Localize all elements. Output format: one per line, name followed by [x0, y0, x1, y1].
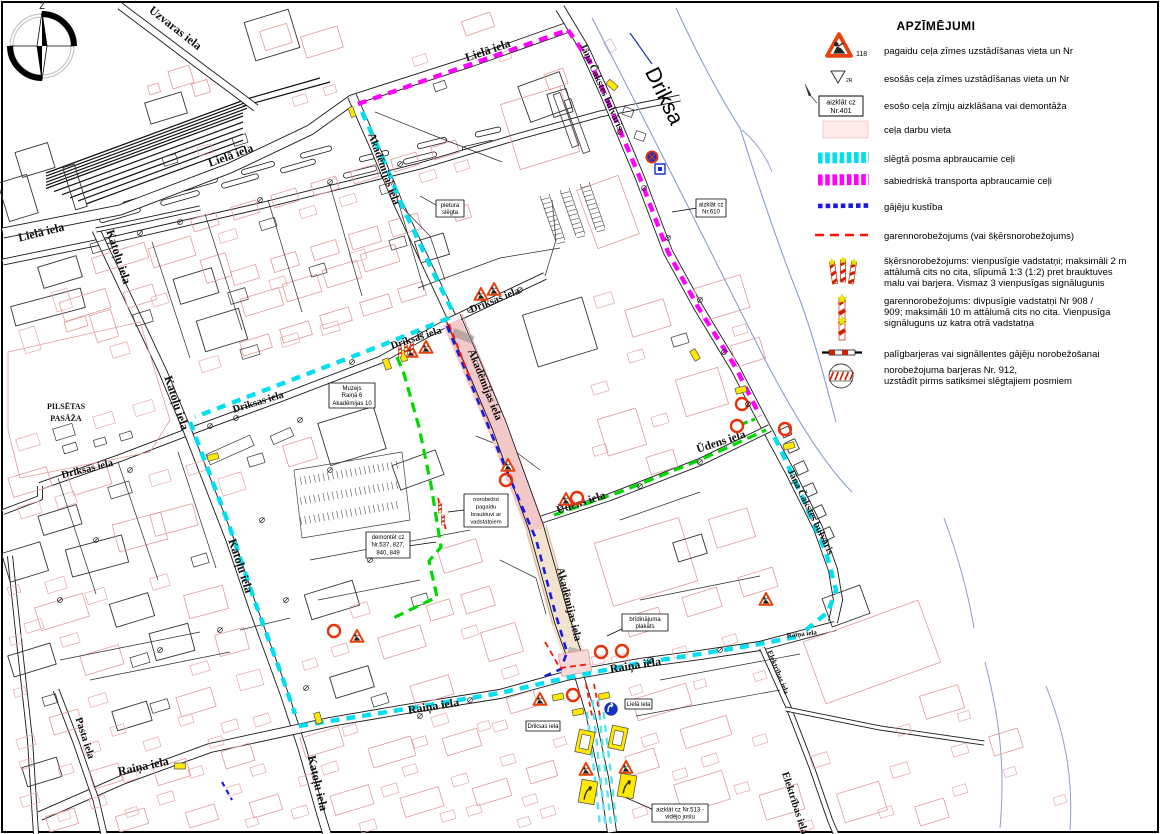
- svg-text:Lielā iela: Lielā iela: [627, 702, 651, 708]
- svg-text:Nr.610: Nr.610: [702, 210, 720, 216]
- svg-text:pagaidu ceļa zīmes uzstādīšana: pagaidu ceļa zīmes uzstādīšanas vieta un…: [884, 46, 1073, 57]
- svg-text:slēgta: slēgta: [442, 210, 459, 216]
- svg-text:Driksas iela: Driksas iela: [527, 724, 559, 730]
- svg-text:909; maksimāli 10 m attālumā c: 909; maksimāli 10 m attālumā cits no cit…: [884, 307, 1111, 318]
- svg-text:Nr.537, 827,: Nr.537, 827,: [372, 543, 405, 549]
- svg-text:APZĪMĒJUMI: APZĪMĒJUMI: [896, 19, 975, 33]
- svg-text:garennorobežojums (vai šķērsno: garennorobežojums (vai šķērsnorobežojums…: [884, 231, 1074, 242]
- svg-text:Nr.401: Nr.401: [830, 106, 851, 115]
- svg-text:plakāts: plakāts: [635, 624, 654, 630]
- svg-text:norobežot: norobežot: [473, 497, 499, 503]
- svg-text:Muzejs: Muzejs: [342, 386, 361, 392]
- svg-text:palīgbarjeras vai signāllentes: palīgbarjeras vai signāllentes gājēju no…: [884, 349, 1099, 360]
- svg-text:malu vai barjera. Vismaz 3 vie: malu vai barjera. Vismaz 3 vienpusīgas s…: [884, 278, 1105, 289]
- svg-text:Akadēmijas 10: Akadēmijas 10: [332, 401, 372, 407]
- svg-text:norobežojuma barjeras Nr. 912,: norobežojuma barjeras Nr. 912,: [884, 365, 1017, 376]
- svg-text:sabiedriskā transporta apbrauc: sabiedriskā transporta apbraucamie ceļi: [884, 176, 1052, 187]
- svg-text:PILSĒTAS: PILSĒTAS: [47, 402, 86, 411]
- svg-text:118: 118: [856, 51, 867, 58]
- svg-text:aizklāt cz Nr.513 -: aizklāt cz Nr.513 -: [656, 807, 704, 813]
- svg-text:demontēt cz: demontēt cz: [372, 535, 405, 541]
- svg-text:signāluguns uz katra otrā vads: signāluguns uz katra otrā vadstatņa: [884, 318, 1035, 329]
- svg-text:attālumā cits no cita, slīpumā: attālumā cits no cita, slīpumā 1:3 (1:2)…: [884, 267, 1113, 278]
- svg-text:Z: Z: [39, 1, 45, 11]
- svg-text:brauktuvi ar: brauktuvi ar: [471, 512, 501, 518]
- svg-text:PASĀŽA: PASĀŽA: [50, 413, 82, 423]
- svg-text:840, 849: 840, 849: [376, 550, 400, 556]
- svg-text:pietura: pietura: [441, 203, 460, 209]
- svg-text:esošo ceļa zīmju aizklāšana va: esošo ceļa zīmju aizklāšana vai demontāž…: [884, 101, 1067, 112]
- svg-text:gājēju kustība: gājēju kustība: [884, 202, 943, 213]
- svg-text:2R: 2R: [846, 78, 853, 84]
- svg-text:šķērsnorobežojums: vienpusīgie: šķērsnorobežojums: vienpusīgie vadstatņi…: [884, 256, 1126, 267]
- svg-text:esošās ceļa zīmes uzstādīšanas: esošās ceļa zīmes uzstādīšanas vieta un …: [884, 74, 1069, 85]
- svg-text:ceļa darbu vieta: ceļa darbu vieta: [884, 125, 952, 136]
- svg-text:garennorobežojums: divpusīgie: garennorobežojums: divpusīgie vadstatņi …: [884, 296, 1093, 307]
- svg-text:slēgtā posma apbraucamie ceļi: slēgtā posma apbraucamie ceļi: [884, 154, 1015, 165]
- svg-text:pagaidu: pagaidu: [476, 504, 497, 510]
- svg-text:aizklāt cz: aizklāt cz: [699, 202, 724, 208]
- svg-text:brīdinājuma: brīdinājuma: [629, 617, 661, 623]
- svg-text:vadstatņiem: vadstatņiem: [470, 519, 501, 525]
- svg-text:uzstādīt pirms satiksmei slēgt: uzstādīt pirms satiksmei slēgtajiem posm…: [884, 376, 1072, 387]
- svg-text:Raiņā 6: Raiņā 6: [342, 393, 363, 399]
- svg-text:vidējo joslu: vidējo joslu: [665, 815, 695, 821]
